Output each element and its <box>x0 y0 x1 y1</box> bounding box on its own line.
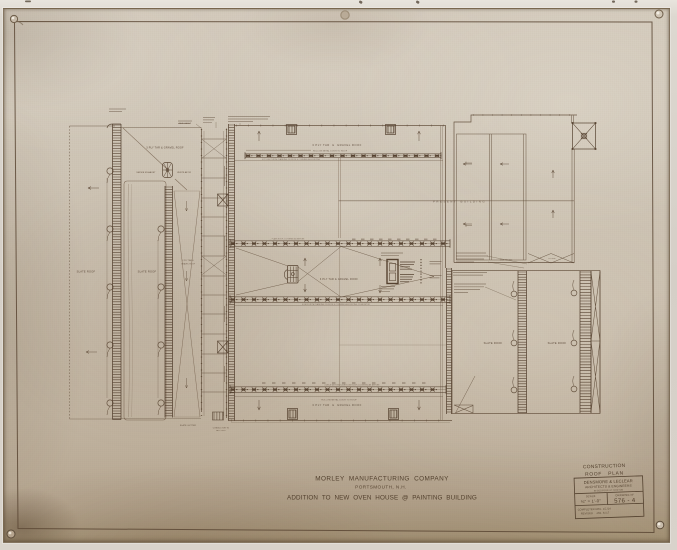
svg-text:... PLANK ROOF 4 COVERED AS BE: ... PLANK ROOF 4 COVERED AS BEFORE <box>270 238 306 241</box>
svg-text:3 PLY TAR &: 3 PLY TAR & <box>182 259 194 262</box>
svg-text:MORLEY MANUFACTURING COMPANY: MORLEY MANUFACTURING COMPANY <box>315 476 449 483</box>
svg-text:CONSTRUCTION: CONSTRUCTION <box>583 463 626 470</box>
svg-text:GRAVEL ROOF: GRAVEL ROOF <box>181 263 196 266</box>
svg-text:3 PLY TAR & GRAVEL ROOF: 3 PLY TAR & GRAVEL ROOF <box>312 403 362 407</box>
svg-text:SLATE GUTTER: SLATE GUTTER <box>180 424 197 427</box>
svg-text:¼″ = 1′-0″: ¼″ = 1′-0″ <box>581 498 602 504</box>
svg-text:4 DECK WITH PLANKING ON ROOF 4: 4 DECK WITH PLANKING ON ROOF 4 COVERED A… <box>302 303 370 306</box>
svg-text:DOWN: DOWN <box>549 258 556 260</box>
svg-text:DRAWING Nº: DRAWING Nº <box>615 493 634 498</box>
svg-text:BE POINT: BE POINT <box>216 430 226 432</box>
svg-text:RAIN LEADER: RAIN LEADER <box>179 122 192 125</box>
svg-text:PORTSMOUTH, N.H.: PORTSMOUTH, N.H. <box>355 485 407 490</box>
svg-text:3 PLY TAR & GRAVEL ROOF: 3 PLY TAR & GRAVEL ROOF <box>146 147 184 150</box>
svg-text:4 PLY FELT WITH PLANKING ON RO: 4 PLY FELT WITH PLANKING ON ROOF 4 COVER… <box>262 158 321 161</box>
svg-text:VENTILATOR: VENTILATOR <box>177 171 191 174</box>
svg-text:P R E S E N T B U I L D I N: P R E S E N T B U I L D I N G <box>433 200 485 204</box>
svg-text:SLATE ROOF: SLATE ROOF <box>77 270 96 274</box>
svg-text:ARCHITECTS & ENGINEERS: ARCHITECTS & ENGINEERS <box>585 484 633 490</box>
svg-text:HOLLOW METAL DOOR TO ROOF: HOLLOW METAL DOOR TO ROOF <box>321 398 357 401</box>
svg-text:3 PLY TAR & GRAVEL ROOF: 3 PLY TAR & GRAVEL ROOF <box>320 278 359 281</box>
svg-text:SMOKE EXHAUST: SMOKE EXHAUST <box>136 171 156 174</box>
svg-text:ADDITION TO NEW OVEN HOUSE: ADDITION TO NEW OVEN HOUSE @ PAINTING BU… <box>287 495 477 502</box>
svg-text:3 PLY TAR & GRAVEL ROOF: 3 PLY TAR & GRAVEL ROOF <box>312 143 362 147</box>
svg-text:HOLLOW METAL DOOR TO ROOF: HOLLOW METAL DOOR TO ROOF <box>313 150 348 153</box>
svg-text:SLATE ROOF: SLATE ROOF <box>548 341 567 345</box>
svg-text:576 - 4: 576 - 4 <box>614 498 636 505</box>
svg-text:4 DECK WITH SKYLIGHTS ON ROOF: 4 DECK WITH SKYLIGHTS ON ROOF 4 COVERED … <box>324 384 380 387</box>
svg-text:SLATE ROOF: SLATE ROOF <box>484 341 503 345</box>
svg-text:SLATE ROOF: SLATE ROOF <box>138 270 157 274</box>
